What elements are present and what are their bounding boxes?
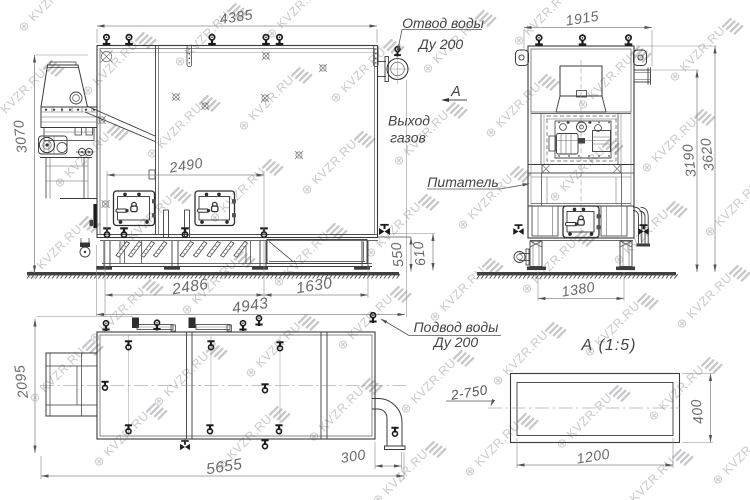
svg-text:Подвод воды: Подвод воды [414, 319, 500, 335]
svg-text:газов: газов [390, 130, 426, 146]
svg-text:Отвод воды: Отвод воды [402, 15, 484, 31]
svg-text:Выход: Выход [388, 113, 430, 129]
svg-text:А: А [450, 84, 461, 100]
svg-text:550: 550 [389, 241, 408, 268]
svg-text:Питатель: Питатель [427, 174, 498, 190]
svg-text:400: 400 [689, 398, 708, 425]
svg-text:Ду 200: Ду 200 [417, 36, 463, 52]
svg-text:610: 610 [411, 240, 430, 267]
svg-text:Ду 200: Ду 200 [432, 334, 478, 350]
svg-text:А (1:5): А (1:5) [580, 337, 636, 354]
